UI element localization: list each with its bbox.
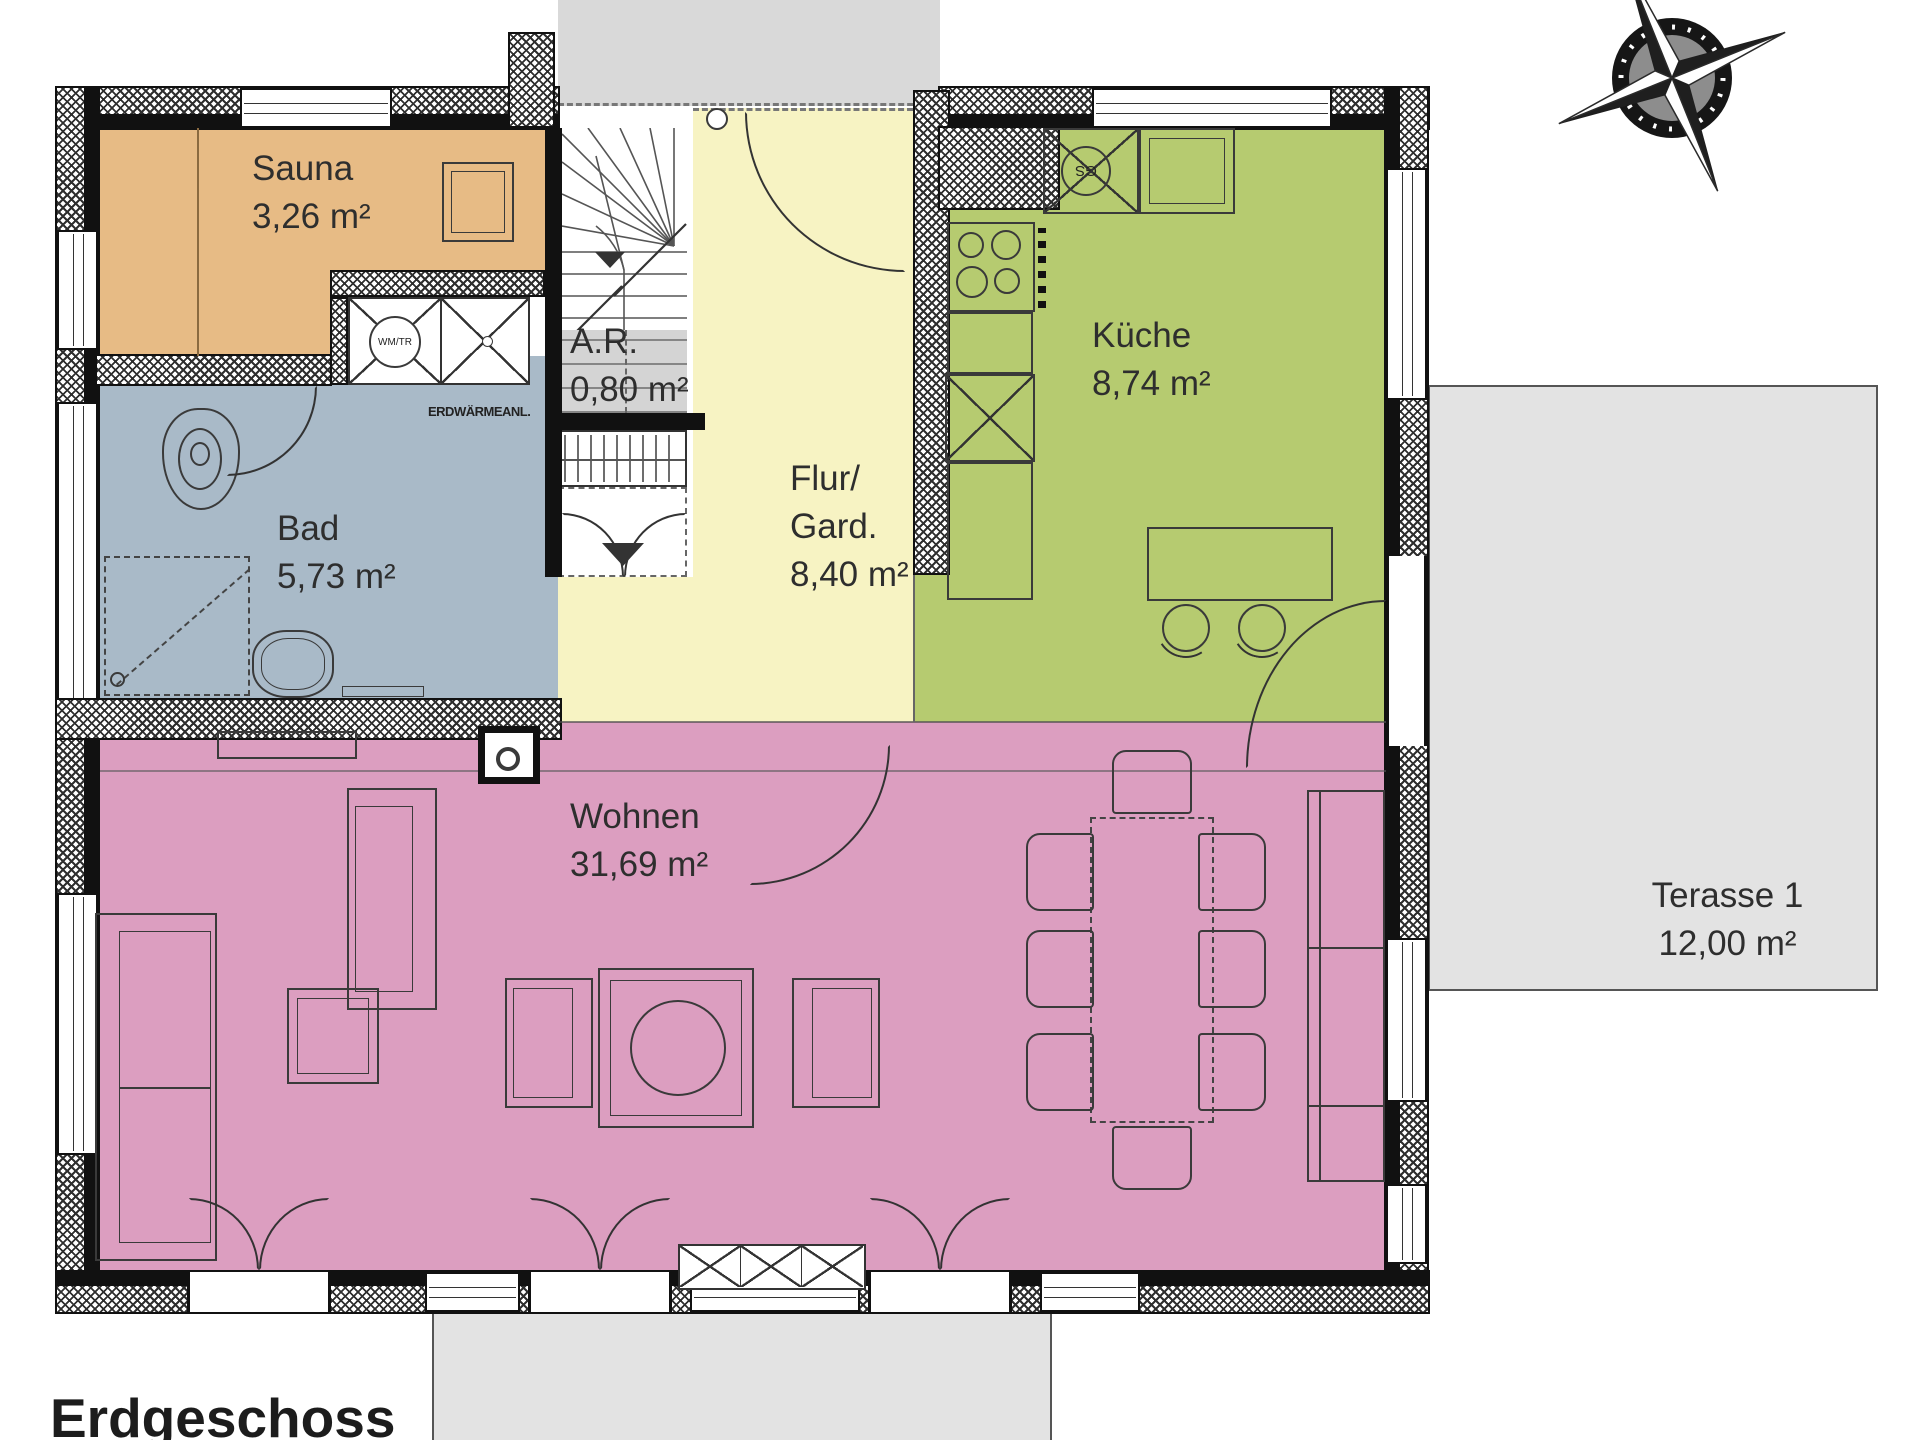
kueche-top-window (1092, 88, 1332, 128)
wohnen-left-window (57, 893, 98, 1155)
ceiling-edge-line (100, 770, 1386, 772)
convector-cell-3 (802, 1246, 863, 1287)
kueche-flur-line (913, 575, 915, 722)
armchair-3-seat (812, 988, 872, 1098)
room-kueche-strip (913, 575, 950, 722)
washer-dryer-circle: WM/TR (369, 316, 421, 368)
sideboard (217, 731, 357, 759)
sauna-bench-line (197, 128, 199, 356)
kueche-area: 8,74 m² (1092, 360, 1211, 408)
sauna-name: Sauna (252, 145, 371, 193)
compass-rose-icon (1540, 0, 1820, 225)
burner-4 (994, 268, 1020, 294)
room-label-terrasse: Terasse 1 12,00 m² (1595, 872, 1860, 968)
washbasin (252, 630, 334, 698)
convector-cell-1 (680, 1246, 741, 1287)
dishwasher-label: GS (1063, 148, 1109, 193)
ar-name: A.R. (570, 318, 689, 366)
fridge-unit (1139, 128, 1235, 214)
bath-shelf (342, 686, 424, 697)
toilet-drain (190, 442, 210, 466)
french-door-opening-3 (868, 1272, 1012, 1312)
dining-chair-l1 (1026, 833, 1094, 911)
burner-3 (956, 266, 988, 298)
room-label-ar: A.R. 0,80 m² (570, 318, 689, 414)
wall-utility-left (330, 297, 348, 385)
kitchen-bar (1147, 527, 1333, 601)
bad-window (57, 402, 98, 708)
convector-cell-2 (741, 1246, 802, 1287)
french-door-opening-1 (187, 1272, 331, 1312)
cabinet-face-line (1319, 792, 1321, 1180)
wall-utility-top (330, 270, 545, 297)
french-door-opening-2 (528, 1272, 672, 1312)
wall-cabinet (1307, 790, 1385, 1182)
kitchen-counter-b (947, 462, 1033, 600)
wardrobe-rail (560, 459, 685, 461)
room-label-bad: Bad 5,73 m² (277, 505, 396, 601)
terrace-bottom (432, 1312, 1052, 1440)
dining-chair-top (1112, 750, 1192, 814)
wardrobe (558, 430, 687, 487)
flur-name: Flur/ Gard. (790, 455, 909, 551)
wall-sauna-bottom (95, 354, 332, 386)
room-flur-lower (545, 577, 693, 722)
dining-chair-l3 (1026, 1033, 1094, 1111)
wall-stair-left (545, 128, 562, 577)
terrace-door-opening (1386, 556, 1427, 746)
wall-kueche-step (938, 126, 1060, 210)
bottom-window-1 (425, 1272, 520, 1312)
stair-post (706, 108, 728, 130)
room-sauna-lower (100, 272, 330, 356)
chimney (478, 726, 540, 784)
dining-chair-l2 (1026, 930, 1094, 1008)
floor-title: Erdgeschoss (50, 1386, 395, 1440)
armchair-2-seat (513, 988, 573, 1098)
bad-name: Bad (277, 505, 396, 553)
shower-drain (110, 672, 125, 687)
burner-2 (991, 230, 1021, 260)
geothermal-text: ERDWÄRMEANL. (428, 404, 530, 419)
terrasse-name: Terasse 1 (1595, 872, 1860, 920)
sauna-area: 3,26 m² (252, 193, 371, 241)
room-label-flur: Flur/ Gard. 8,40 m² (790, 455, 909, 599)
stove (947, 222, 1035, 312)
dishwasher-circle: GS (1061, 146, 1111, 196)
bar-stool-1 (1162, 604, 1210, 652)
dining-table (1090, 817, 1214, 1123)
wohnen-name: Wohnen (570, 793, 708, 841)
utility-drain (482, 336, 493, 347)
left-window-upper (57, 230, 98, 350)
sofa-2-seat (355, 806, 413, 992)
kueche-right-window (1386, 168, 1427, 400)
entrance-arrow (602, 543, 644, 566)
fridge-inner (1149, 138, 1225, 204)
room-label-sauna: Sauna 3,26 m² (252, 145, 371, 241)
floor-convector (678, 1244, 866, 1290)
outside-area-top (558, 0, 940, 106)
flur-area: 8,40 m² (790, 551, 909, 599)
sofa-2 (347, 788, 437, 1010)
stove-handle-dashes (1038, 228, 1046, 308)
armchair-3 (792, 978, 880, 1108)
bad-area: 5,73 m² (277, 553, 396, 601)
armchair-2 (505, 978, 593, 1108)
floor-plan: WM/TR (0, 0, 1920, 1440)
kitchen-counter-a (947, 312, 1033, 374)
room-label-kueche: Küche 8,74 m² (1092, 312, 1211, 408)
wall-stair-bump (508, 32, 555, 128)
burner-1 (958, 232, 984, 258)
washer-dryer-label: WM/TR (371, 318, 419, 367)
wall-ar-bottom (545, 413, 705, 430)
coffee-table-circle (630, 1000, 726, 1096)
sauna-window (240, 88, 392, 128)
ar-area: 0,80 m² (570, 366, 689, 414)
wohnen-area: 31,69 m² (570, 841, 708, 889)
terrasse-area: 12,00 m² (1595, 920, 1860, 968)
wohnen-right-window-2 (1386, 1184, 1427, 1264)
dining-chair-r1 (1198, 833, 1266, 911)
bottom-window-3 (1040, 1272, 1140, 1312)
washbasin-bowl (261, 638, 325, 690)
dining-chair-r2 (1198, 930, 1266, 1008)
geothermal-label: ERDWÄRMEANL. (428, 404, 530, 419)
dining-chair-r3 (1198, 1033, 1266, 1111)
sauna-stove-inner (451, 171, 505, 233)
sauna-stove (442, 162, 514, 242)
sofa-left-divider (119, 1087, 211, 1089)
kitchen-appliance-x (945, 374, 1035, 462)
room-label-wohnen: Wohnen 31,69 m² (570, 793, 708, 889)
dining-chair-bottom (1112, 1126, 1192, 1190)
kueche-name: Küche (1092, 312, 1211, 360)
wohnen-right-window (1386, 938, 1427, 1102)
chimney-flue (496, 747, 520, 771)
bar-stool-2 (1238, 604, 1286, 652)
